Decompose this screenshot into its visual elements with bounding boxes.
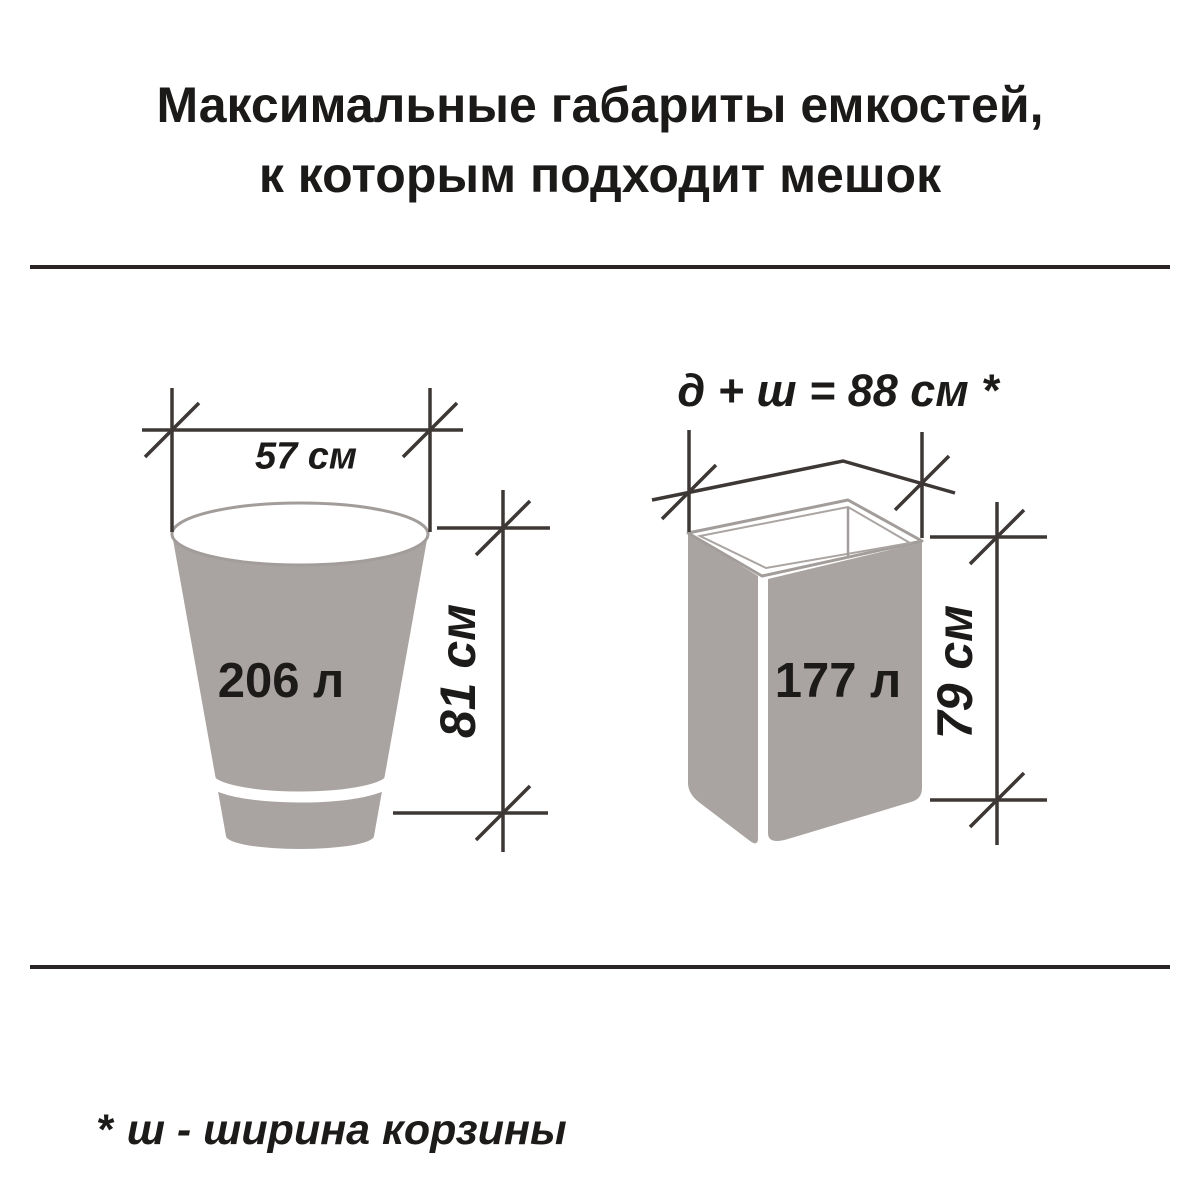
- title-line-2: к которым подходит мешок: [0, 140, 1200, 210]
- box-left-face: [688, 533, 758, 843]
- title-line-1: Максимальные габариты емкостей,: [0, 70, 1200, 140]
- footnote-line-1-text: ш - ширина корзины: [127, 1106, 567, 1154]
- footnote-asterisk: *: [96, 1106, 113, 1154]
- box-volume-label: 177 л: [775, 653, 902, 709]
- box-dimension-formula-label: д + ш = 88 см *: [677, 365, 998, 417]
- page-title: Максимальные габариты емкостей, к которы…: [0, 70, 1200, 210]
- box-height-label: 79 см: [926, 605, 984, 739]
- bucket-height-label: 81 см: [429, 604, 487, 738]
- bucket-width-label: 57 см: [255, 436, 357, 479]
- infographic: Максимальные габариты емкостей, к которы…: [0, 0, 1200, 1200]
- footnote: *ш - ширина корзины д - длина корзины: [96, 1005, 567, 1200]
- bucket-opening: [172, 503, 428, 565]
- footnote-line-1: *ш - ширина корзины: [96, 1105, 567, 1155]
- bucket-volume-label: 206 л: [218, 653, 345, 709]
